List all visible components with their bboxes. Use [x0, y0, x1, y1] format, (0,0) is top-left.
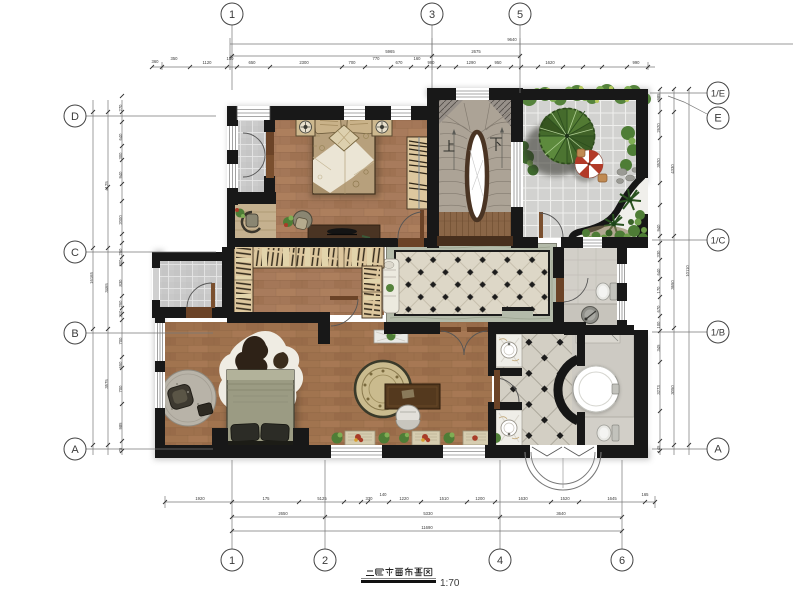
svg-text:2650: 2650 — [278, 511, 288, 516]
svg-text:700: 700 — [349, 60, 357, 65]
svg-text:3273: 3273 — [656, 385, 661, 395]
svg-text:140: 140 — [380, 492, 388, 497]
svg-text:B: B — [71, 328, 78, 340]
svg-text:9640: 9640 — [507, 37, 517, 42]
svg-text:5: 5 — [517, 9, 523, 21]
svg-text:300: 300 — [118, 259, 123, 267]
svg-text:1: 1 — [229, 555, 235, 567]
svg-text:16165: 16165 — [89, 272, 94, 284]
svg-text:1920: 1920 — [195, 496, 205, 501]
svg-text:3520: 3520 — [656, 158, 661, 168]
svg-text:1220: 1220 — [399, 496, 409, 501]
svg-text:670: 670 — [396, 60, 404, 65]
svg-text:1520: 1520 — [560, 496, 570, 501]
svg-text:1620: 1620 — [545, 60, 555, 65]
svg-text:2620: 2620 — [656, 123, 661, 133]
svg-text:350: 350 — [171, 56, 179, 61]
svg-text:1120: 1120 — [202, 60, 212, 65]
svg-text:270: 270 — [118, 104, 123, 112]
svg-text:5330: 5330 — [423, 511, 433, 516]
svg-text:4125: 4125 — [104, 181, 109, 191]
svg-text:1290: 1290 — [466, 60, 476, 65]
svg-text:160: 160 — [414, 56, 422, 61]
svg-text:640: 640 — [656, 268, 661, 276]
svg-text:75: 75 — [118, 447, 123, 452]
svg-text:3050: 3050 — [670, 385, 675, 395]
svg-text:1510: 1510 — [439, 496, 449, 501]
svg-text:1645: 1645 — [607, 496, 617, 501]
svg-text:C: C — [71, 247, 79, 259]
svg-text:145: 145 — [656, 445, 661, 453]
svg-text:11690: 11690 — [421, 525, 433, 530]
svg-text:5965: 5965 — [385, 49, 395, 54]
svg-text:3650: 3650 — [670, 280, 675, 290]
svg-text:650: 650 — [118, 361, 123, 369]
svg-text:700: 700 — [118, 385, 123, 393]
svg-text:100: 100 — [656, 321, 661, 329]
svg-text:985: 985 — [118, 422, 123, 430]
svg-text:250: 250 — [118, 248, 123, 256]
svg-text:150: 150 — [227, 56, 235, 61]
svg-text:D: D — [71, 111, 79, 123]
svg-text:A: A — [71, 444, 79, 456]
svg-text:770: 770 — [373, 56, 381, 61]
svg-text:3465: 3465 — [104, 283, 109, 293]
svg-text:1/C: 1/C — [711, 236, 726, 247]
svg-text:165: 165 — [642, 492, 650, 497]
svg-text:300: 300 — [118, 152, 123, 160]
svg-text:2: 2 — [322, 555, 328, 567]
svg-text:985: 985 — [656, 93, 661, 101]
svg-text:345: 345 — [656, 344, 661, 352]
svg-text:E: E — [714, 113, 721, 125]
svg-text:670: 670 — [656, 305, 661, 313]
svg-text:830: 830 — [118, 279, 123, 287]
svg-text:2000: 2000 — [118, 215, 123, 225]
svg-text:2675: 2675 — [471, 49, 481, 54]
svg-text:700: 700 — [118, 337, 123, 345]
svg-text:250: 250 — [118, 300, 123, 308]
svg-text:360: 360 — [152, 59, 160, 64]
svg-text:940: 940 — [118, 171, 123, 179]
svg-text:330: 330 — [366, 496, 374, 501]
svg-text:170: 170 — [656, 286, 661, 294]
svg-text:650: 650 — [249, 60, 257, 65]
svg-text:A: A — [714, 444, 722, 456]
svg-text:950: 950 — [495, 60, 503, 65]
svg-text:990: 990 — [633, 60, 641, 65]
svg-text:210: 210 — [118, 310, 123, 318]
svg-text:5125: 5125 — [317, 496, 327, 501]
svg-text:2300: 2300 — [299, 60, 309, 65]
svg-text:3640: 3640 — [556, 511, 566, 516]
svg-text:1200: 1200 — [475, 496, 485, 501]
svg-text:990: 990 — [428, 60, 436, 65]
svg-text:940: 940 — [656, 224, 661, 232]
svg-text:4: 4 — [497, 555, 503, 567]
svg-text:4330: 4330 — [670, 164, 675, 174]
svg-text:10110: 10110 — [685, 265, 690, 277]
svg-text:175: 175 — [263, 496, 271, 501]
svg-text:3: 3 — [429, 9, 435, 21]
svg-text:6: 6 — [619, 555, 625, 567]
svg-text:640: 640 — [118, 133, 123, 141]
svg-text:3575: 3575 — [104, 379, 109, 389]
svg-text:1/B: 1/B — [711, 328, 725, 339]
svg-text:1630: 1630 — [518, 496, 528, 501]
svg-text:1:70: 1:70 — [440, 578, 460, 589]
svg-text:1: 1 — [229, 9, 235, 21]
svg-text:330: 330 — [656, 250, 661, 258]
svg-text:1/E: 1/E — [711, 89, 725, 100]
